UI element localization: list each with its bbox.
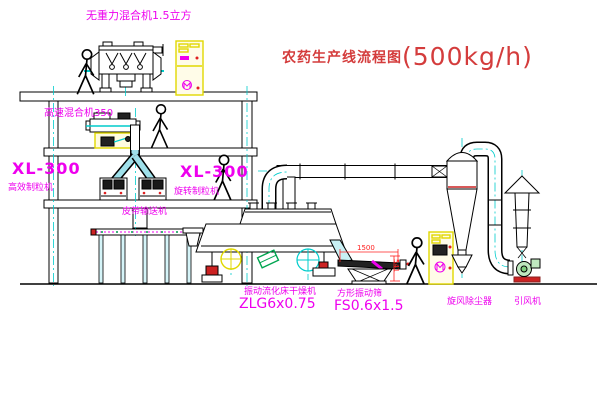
- person-third-floor: [214, 155, 231, 199]
- person-second-floor: [152, 105, 168, 148]
- person-top-floor: [77, 50, 94, 94]
- flow-diagram-canvas: 农药生产线流程图(500kg/h) 无重力混合机1.5立方 高速混合机350 X…: [0, 0, 600, 403]
- control-cabinet-lower: [429, 232, 453, 284]
- title-text: 农药生产线流程图: [282, 47, 402, 67]
- rotary-valve: [258, 250, 279, 268]
- dimension-screen-height: 541: [392, 259, 399, 272]
- control-cabinet-upper: [176, 41, 203, 95]
- person-ground-floor: [407, 238, 424, 284]
- mixer-drive-stand: [95, 133, 135, 148]
- induced-draft-fan: [508, 259, 540, 282]
- belt-conveyor: [91, 229, 200, 283]
- granulator-right: [139, 178, 166, 200]
- granulator-left: [100, 178, 127, 200]
- diagram-title: 农药生产线流程图(500kg/h): [282, 42, 533, 71]
- dimension-screen-length: 1500: [357, 245, 375, 252]
- exhaust-stack: [505, 176, 539, 258]
- gravity-free-mixer: [84, 42, 164, 92]
- title-capacity: (500kg/h): [402, 42, 533, 71]
- fluid-bed-dryer: [183, 203, 352, 282]
